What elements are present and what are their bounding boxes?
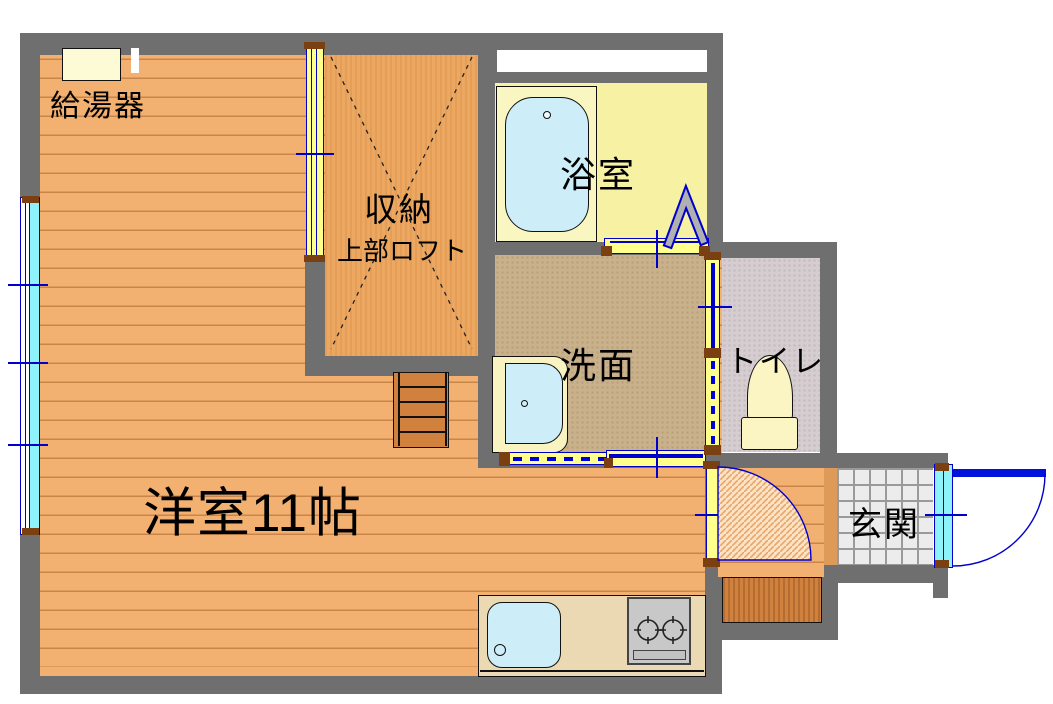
toilet-label: トイレ	[726, 336, 825, 381]
kitchen-sink	[487, 602, 561, 668]
center-tick-washroom-door	[656, 437, 658, 478]
washroom-door-pocket	[508, 452, 612, 465]
window-cap-bottom	[22, 528, 39, 535]
center-tick-hall-door	[695, 514, 742, 516]
hall-door-panel	[706, 467, 719, 565]
entrance-label: 玄関	[848, 497, 920, 546]
center-tick-toilet-door	[698, 306, 732, 308]
loft-ladder	[393, 372, 449, 448]
entrance-door-cap-bottom	[935, 560, 949, 568]
washbasin-drain	[521, 400, 528, 407]
wall-bottom	[20, 676, 722, 694]
toilet-tank	[741, 417, 798, 450]
entrance-door-cap-top	[935, 463, 949, 471]
entrance-step-box	[722, 577, 822, 623]
toilet-door-cap-mid	[704, 348, 721, 358]
toilet-door-cap-bottom	[704, 445, 721, 455]
wall-entrance-bottom	[818, 565, 948, 583]
washroom-door-cap-left	[499, 452, 510, 466]
stove-grill-drawer	[633, 650, 686, 660]
entrance-door	[934, 464, 953, 568]
wall-right-bathroom	[707, 33, 723, 244]
toilet-door-dashed	[711, 361, 715, 449]
entrance-door-sash	[943, 465, 944, 567]
bath-door-cap-left	[601, 246, 612, 256]
wall-storage-left-lower	[305, 256, 325, 376]
storage-loft-label: 上部ロフト	[337, 231, 467, 268]
water-heater-label: 給湯器	[50, 81, 146, 125]
main-room-label: 洋室11帖	[143, 471, 362, 547]
storage-door-cap-top	[304, 42, 325, 49]
window-sash-line	[25, 198, 26, 534]
storage-label: 収納	[364, 183, 434, 231]
washbasin	[505, 363, 563, 444]
window-glass	[29, 198, 39, 534]
center-tick-window-1	[8, 284, 48, 286]
wall-vent-mark	[131, 48, 139, 73]
center-tick-entrance-door	[925, 514, 967, 516]
washroom-door-dashed-line	[513, 457, 607, 461]
bathroom-label: 浴室	[560, 146, 636, 198]
kitchen-counter-edge	[480, 670, 704, 672]
toilet-door-cap-top	[704, 252, 721, 260]
floor-plan: 給湯器 収納 上部ロフト 浴室 洗面 トイレ 玄関 洋室11帖	[0, 0, 1053, 704]
ladder-rungs	[398, 373, 447, 446]
water-heater-unit	[62, 48, 121, 81]
storage-door-track	[311, 47, 312, 257]
entrance-door-swing-arc	[953, 474, 1045, 566]
center-tick-bath-door	[656, 230, 658, 268]
storage-sliding-door	[306, 46, 324, 258]
kitchen-sink-drain	[494, 644, 506, 656]
bathroom-window	[497, 50, 707, 72]
hall-door-cap-bottom	[703, 558, 720, 567]
hall-door-cap-top	[703, 461, 720, 469]
center-tick-window-2	[8, 362, 48, 364]
washroom-label: 洗面	[560, 337, 636, 389]
hallway-floor	[718, 468, 824, 577]
entrance-door-open-panel	[953, 469, 1046, 477]
wall-entrance-right-stub	[933, 565, 948, 598]
storage-door-cap-bottom	[304, 255, 325, 262]
storage-door-track2	[316, 47, 317, 257]
window-cap-top	[22, 196, 39, 203]
wall-step-south	[705, 621, 838, 640]
center-tick-window-3	[8, 444, 48, 446]
washroom-door-cap-mid	[604, 458, 613, 468]
main-room-window	[20, 197, 40, 535]
bathtub-drain	[543, 111, 551, 119]
center-tick-storage-door	[296, 153, 334, 155]
entrance-step-edge	[824, 468, 837, 565]
